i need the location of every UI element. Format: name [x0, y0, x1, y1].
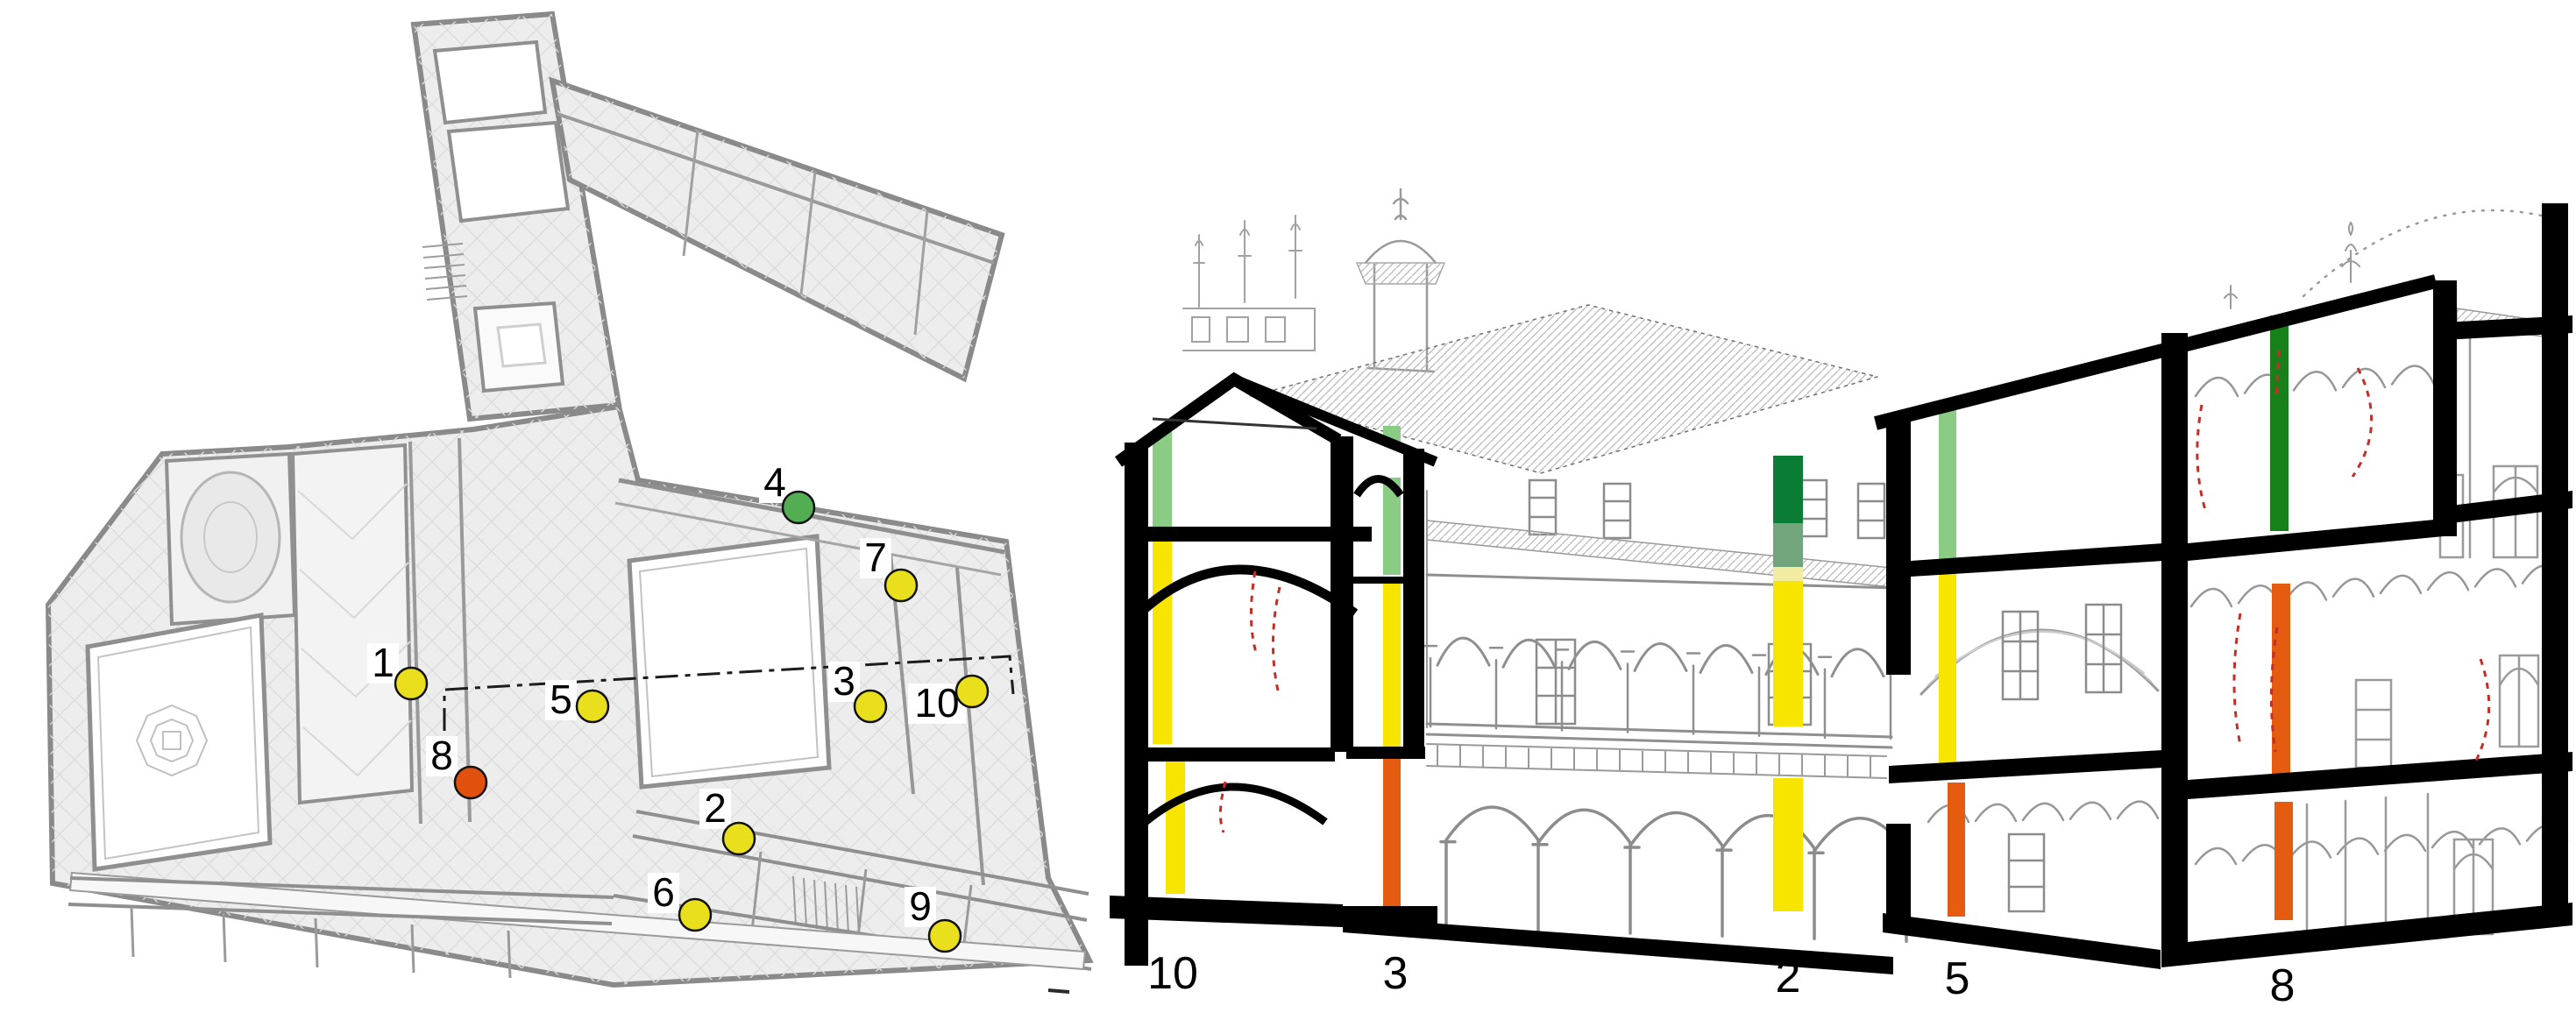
- plan-marker-dot: [395, 668, 427, 699]
- plan-marker-number: 8: [430, 733, 453, 778]
- cross-section-drawing: 103258: [1110, 189, 2572, 1011]
- section-bar-segment: [2274, 802, 2293, 920]
- section-bar-segment: [1153, 539, 1172, 744]
- section-label-5: 5: [1945, 953, 1970, 1004]
- plan-marker-number: 3: [833, 658, 855, 704]
- plan-marker-number: 2: [704, 785, 727, 831]
- plan-marker-number: 10: [914, 680, 959, 726]
- plan-marker-dot: [783, 492, 814, 523]
- plan-marker-dot: [929, 920, 961, 952]
- plan-marker-number: 1: [372, 640, 394, 685]
- plan-marker-dot: [855, 691, 886, 722]
- section-bar-segment: [1166, 753, 1185, 894]
- section-bar-segment: [1773, 778, 1803, 911]
- section-bar-segment: [2270, 315, 2289, 531]
- section-courtyard-ground: [1343, 917, 1893, 974]
- section-finial: [2225, 223, 2360, 308]
- figure-canvas: 12345678910: [0, 0, 2576, 1020]
- plan-marker-number: 6: [652, 869, 675, 915]
- section-bar-segment: [1773, 581, 1803, 726]
- section-bar-segment: [1153, 429, 1172, 528]
- section-bar-10: [1153, 429, 1185, 894]
- plan-main-courtyard: [629, 536, 829, 787]
- section-bar-segment: [2272, 584, 2290, 778]
- section-bar-8: [2270, 315, 2293, 920]
- section-bar-segment: [1383, 750, 1401, 906]
- plan-nave: [293, 445, 412, 803]
- plan-marker-dot: [679, 899, 711, 931]
- floor-plan-drawing: 12345678910: [48, 14, 1091, 992]
- section-sloped-roof: [1876, 281, 2436, 423]
- section-bar-segment: [1773, 523, 1803, 567]
- section-pinnacles: [1183, 216, 1315, 351]
- diagram-svg: 12345678910: [0, 0, 2576, 1020]
- plan-marker-number: 5: [550, 676, 572, 722]
- section-bar-3: [1383, 426, 1401, 906]
- section-bar-segment: [1773, 456, 1803, 523]
- section-wall: [1125, 443, 1148, 966]
- section-bar-5: [1939, 407, 1965, 917]
- plan-marker-dot: [723, 823, 755, 854]
- plan-marker-dot: [577, 691, 608, 722]
- plan-tick-mark: [1048, 990, 1069, 992]
- section-bar-segment: [1939, 570, 1956, 763]
- section-right-wall: [2542, 203, 2568, 917]
- plan-marker-dot: [956, 676, 988, 707]
- section-label-3: 3: [1383, 948, 1409, 999]
- plan-marker-dot: [885, 570, 917, 601]
- plan-marker-dot: [455, 767, 486, 798]
- section-bar-segment: [1773, 567, 1803, 581]
- section-bar-2: [1773, 456, 1803, 911]
- plan-marker-number: 7: [864, 535, 887, 580]
- section-label-8: 8: [2270, 960, 2296, 1011]
- section-right-base: [2161, 903, 2572, 967]
- section-label-2: 2: [1776, 952, 1801, 1002]
- section-bar-segment: [1948, 783, 1965, 917]
- section-bar-segment: [1939, 407, 1956, 561]
- plan-marker-number: 9: [909, 883, 932, 929]
- section-bar-segment: [1383, 584, 1401, 748]
- plan-marker-number: 4: [763, 459, 786, 505]
- section-label-10: 10: [1147, 948, 1198, 999]
